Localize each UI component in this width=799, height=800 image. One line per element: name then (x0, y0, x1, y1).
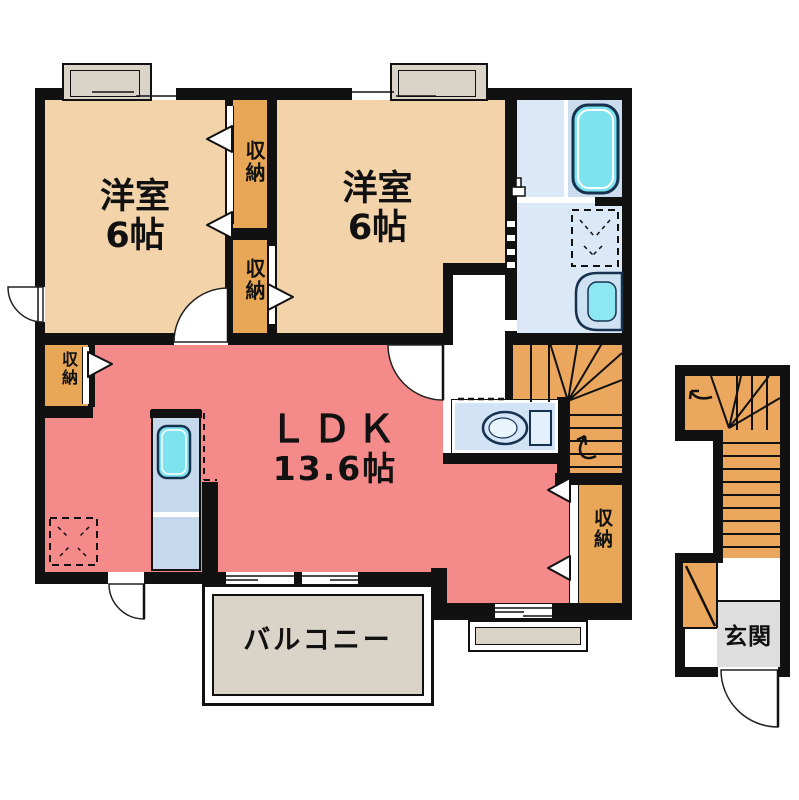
toilet-room (452, 400, 558, 453)
wall-kitchen-partition (202, 482, 218, 574)
room-name: 洋室 (290, 170, 465, 209)
washroom-floor (517, 203, 622, 333)
wall-vent-dash (507, 235, 515, 241)
wall-bedrooms-bottom (35, 333, 453, 345)
bedroom-2-label: 洋室 6帖 (290, 170, 465, 248)
room-name: ＬＤＫ (235, 408, 435, 451)
wall-tub-bottom (595, 197, 622, 206)
door-gap-bedroom1 (174, 333, 228, 345)
ledge-inner (475, 627, 581, 645)
door-gap-entrance (718, 667, 778, 677)
wall-toilet-stairs (557, 397, 570, 473)
door-gap-left-wall (35, 287, 45, 322)
closet-label-ldk: 収納 (56, 351, 80, 387)
ent-wall-notch-side (713, 430, 723, 563)
ent-stairs-top-floor (685, 376, 780, 430)
door-gap-bottom-left (108, 572, 144, 584)
closet-top-door (226, 106, 234, 224)
closet-label-right: 収納 (589, 508, 616, 550)
bedroom-2-floor-lower (277, 263, 443, 333)
window-balcony-a (226, 572, 294, 584)
closet-label-top: 収納 (240, 140, 269, 184)
window-balcony-b (302, 572, 358, 584)
window-box-2-inner (398, 70, 476, 97)
wall-vent-dash (507, 262, 515, 268)
wall-bedroom2-washroom (505, 100, 517, 340)
wall-hall-left (443, 263, 453, 345)
ldk-floor-extension (443, 464, 569, 603)
closet-bottom-door (268, 246, 276, 324)
wall-closet-divider (225, 228, 277, 240)
wall-vent-dash (507, 249, 515, 255)
entrance-label: 玄関 (713, 625, 783, 651)
stairs-upper-floor (513, 340, 622, 402)
bathroom-washing-floor (517, 100, 567, 200)
wall-right (622, 88, 632, 620)
wall-toilet-bottom (443, 453, 570, 464)
floor-plan: 洋室 6帖 洋室 6帖 ＬＤＫ 13.6帖 バルコニー 玄関 収納 収納 収納 … (0, 0, 799, 800)
ent-wall-top (675, 365, 790, 376)
door-arc-bottom-left (109, 584, 144, 619)
stairs-lower-floor (570, 402, 622, 473)
room-size: 13.6帖 (235, 451, 435, 488)
ent-stairs-col-floor (723, 430, 780, 558)
room-name: 洋室 (50, 178, 220, 217)
door-gap-washroom (505, 320, 517, 331)
wall-below-stairs (555, 473, 632, 485)
wall-washroom-bottom (505, 333, 632, 345)
ldk-closet-door (82, 347, 90, 404)
balcony-label: バルコニー (212, 626, 424, 656)
closet-label-bottom: 収納 (240, 258, 269, 302)
window-box-1-inner (70, 70, 140, 97)
bath-counter (517, 197, 595, 203)
right-closet-door (569, 485, 579, 603)
wall-stairs-left (505, 340, 513, 403)
wall-vent-dash (507, 221, 515, 227)
window-lower-right (495, 604, 552, 618)
ldk-label: ＬＤＫ 13.6帖 (235, 408, 435, 488)
door-arc-entrance (721, 670, 778, 727)
ent-under-stair-closet (683, 563, 717, 628)
bath-divider (564, 100, 568, 197)
bathtub-room-floor (567, 100, 622, 197)
wall-ldk-closet-bottom (35, 406, 93, 418)
bedroom-1-label: 洋室 6帖 (50, 178, 220, 256)
room-size: 6帖 (50, 217, 220, 256)
room-size: 6帖 (290, 209, 465, 248)
ent-wall-notch-bottom (675, 553, 723, 563)
